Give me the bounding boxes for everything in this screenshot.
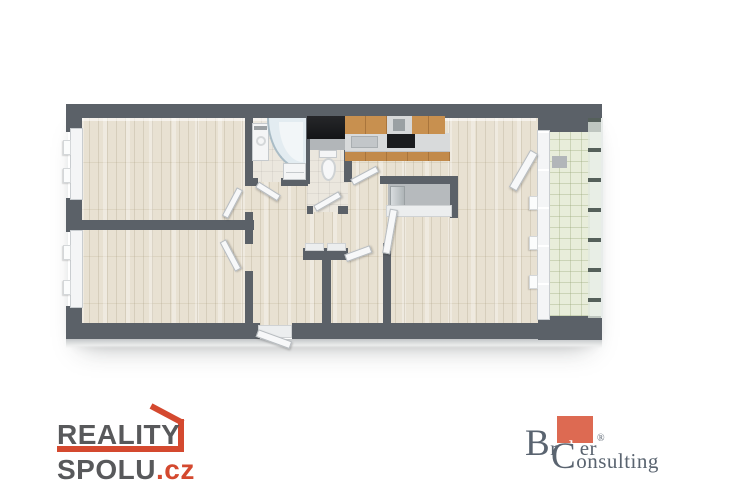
vanity-drawer-line [286, 172, 304, 173]
closet-shelf-right [327, 243, 346, 251]
hood-vent [393, 119, 405, 131]
wall-wc-south-a [307, 206, 313, 214]
broker-consulting-logo: Broker® Consulting [525, 413, 715, 483]
window-sill [63, 245, 71, 260]
consulting-text: onsulting [576, 449, 659, 473]
window-sill [63, 168, 71, 183]
wc-cabinet [310, 139, 345, 150]
cooker-hood [387, 116, 412, 134]
window-sill [529, 275, 538, 289]
wall-niche-top [380, 176, 458, 184]
consulting-initial: C [551, 436, 576, 477]
closet-shelf-left [305, 243, 324, 251]
reality-wordmark: REALITY [57, 421, 180, 449]
wall-bedroom1-right-b [245, 212, 253, 230]
kitchen-sink [351, 136, 378, 148]
wall-bedroom2-right-b [245, 271, 253, 325]
window-sill [63, 280, 71, 295]
washing-machine-panel [254, 126, 267, 130]
spolu-wordmark: SPOLU.cz [57, 456, 195, 484]
consulting-wordmark: Consulting [551, 438, 659, 475]
bathroom-vanity [283, 163, 306, 180]
wall-wc-south-b [338, 206, 348, 214]
kitchen-upper-cabinet-left [345, 116, 387, 134]
window-wall-balcony [537, 130, 550, 320]
spolu-text: SPOLU [57, 454, 156, 485]
wc-dark-counter [307, 116, 348, 139]
spolu-tld: .cz [156, 454, 195, 485]
toilet-tank [319, 150, 337, 158]
window-bedroom2 [70, 230, 83, 308]
fridge [390, 186, 405, 207]
wall-bedroom2-right-a [245, 230, 253, 244]
wall-hall-living [383, 243, 391, 325]
kitchen-lower-cabinets [345, 152, 450, 161]
window-sill [529, 196, 538, 210]
window-bedroom1 [70, 128, 83, 200]
kitchen-upper-cabinet-right [412, 116, 445, 134]
wall-bottom-left [66, 323, 260, 339]
wall-top [66, 104, 538, 118]
shower-tray [279, 122, 303, 162]
window-sill [63, 140, 71, 155]
wall-closet-stem [322, 258, 331, 326]
floor-plan [0, 0, 740, 400]
washing-machine-door [256, 136, 266, 146]
window-sill [529, 236, 538, 250]
wall-rooms-divider [80, 220, 254, 230]
reality-spolu-logo: REALITY SPOLU.cz [55, 400, 220, 488]
broker-initial: B [525, 423, 550, 464]
balcony-bench [552, 156, 567, 168]
balcony-railing [588, 118, 603, 318]
wall-bottom-face [66, 339, 602, 348]
cooktop [387, 134, 415, 148]
washing-machine [252, 123, 269, 161]
